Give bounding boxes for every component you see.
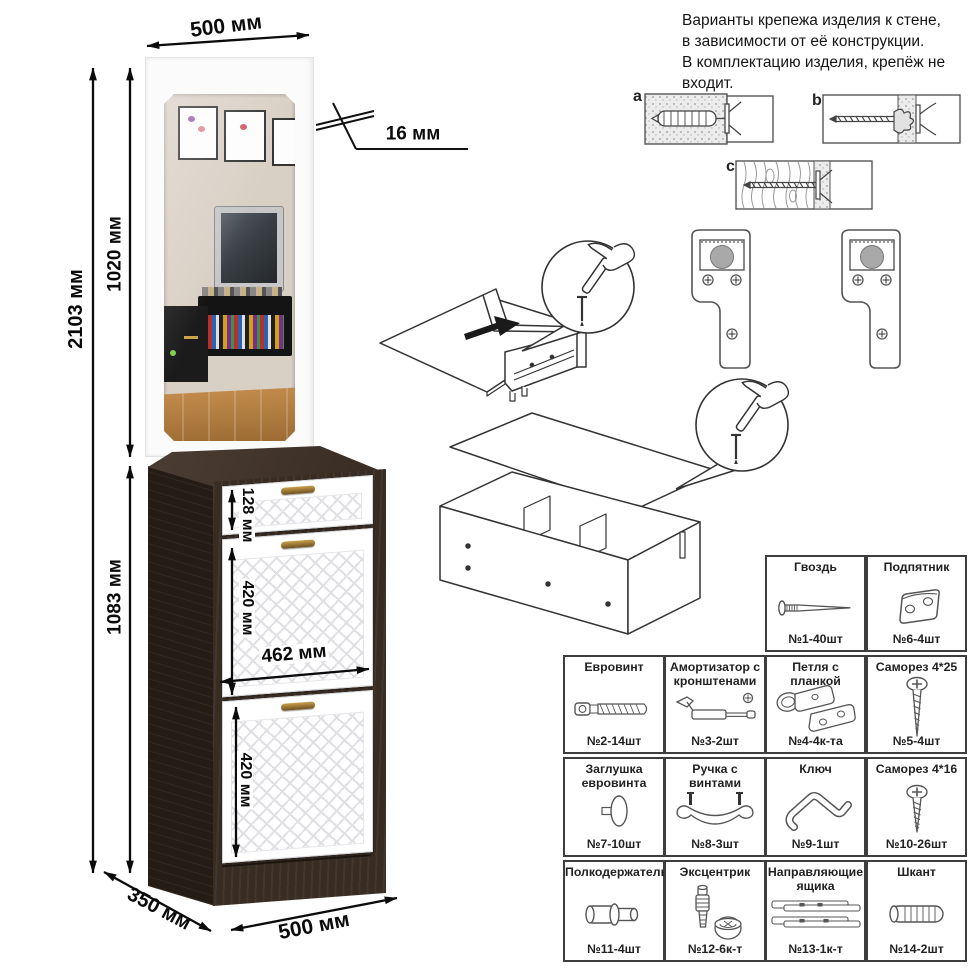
cam-lock-icon [666,892,764,938]
note-line: В комплектацию изделия, крепёж не [682,52,970,73]
part-cell-screw-4x16: Саморез 4*16 №10-26шт [866,757,967,857]
part-name: Гвоздь [767,557,864,575]
screw-4x25-icon [868,687,965,730]
part-name: Саморез 4*25 [868,657,965,675]
part-cell-drawer-slides: Направляющие ящика №13-1к-т [765,860,866,962]
mount-option-a-label: a [633,88,642,106]
drawer-slides-icon [767,892,864,938]
part-name: Шкант [868,862,965,880]
dowel-icon [868,892,965,938]
shelf-pin-icon [565,892,663,938]
part-qty: №11-4шт [565,942,663,956]
part-cell-handle: Ручка с винтами №8-3шт [664,757,766,857]
part-cell-screw-4x25: Саморез 4*25 №5-4шт [866,655,967,754]
part-cell-dowel: Шкант №14-2шт [866,860,967,962]
part-qty: №13-1к-т [767,942,864,956]
part-qty: №2-14шт [565,734,663,748]
part-qty: №10-26шт [868,837,965,851]
drawer-handle [281,485,315,495]
part-name: Подпятник [868,557,965,575]
handle-icon [666,789,764,833]
note-line: Варианты крепежа изделия к стене, [682,10,970,31]
screw-4x16-icon [868,789,965,833]
mount-option-b-figure [820,90,966,148]
part-qty: №12-6к-т [666,942,764,956]
dim-thickness: 16 мм [384,125,443,144]
part-name: Ключ [767,759,864,777]
part-cell-hinge: Петля с планкой №4-4к-та [765,655,866,754]
part-qty: №4-4к-та [767,734,864,748]
part-qty: №9-1шт [767,837,864,851]
lower-door-handle [281,701,315,711]
cabinet-left-side [148,466,215,906]
foot-pad-icon [868,587,965,628]
dim-bottom-width: 500 мм [275,908,354,943]
part-qty: №8-3шт [666,837,764,851]
part-qty: №14-2шт [868,942,965,956]
cap-icon [565,789,663,833]
dim-mirror-height: 1020 мм [106,214,125,294]
hanging-brackets-figure [684,226,908,374]
keyhole-bracket-icon [842,230,900,368]
mirror-panel [145,57,314,457]
keyhole-bracket-icon [692,230,750,368]
part-name: Саморез 4*16 [868,759,965,777]
part-qty: №6-4шт [868,632,965,646]
part-cell-cam-lock: Эксцентрик №12-6к-т [664,860,766,962]
part-qty: №1-40шт [767,632,864,646]
part-name: Полкодержатель [565,862,663,880]
gas-lift-icon [666,687,764,730]
part-qty: №5-4шт [868,734,965,748]
part-cell-cap: Заглушка евровинта №7-10шт [563,757,665,857]
hinge-icon [767,687,864,730]
part-name: Направляющие ящика [767,862,864,894]
confirmat-screw-icon [565,687,663,730]
part-name: Эксцентрик [666,862,764,880]
part-cell-confirmat: Евровинт №2-14шт [563,655,665,754]
part-cell-nail: Гвоздь №1-40шт [765,555,866,652]
dim-cabinet-height: 1083 мм [106,557,125,637]
part-cell-shelf-pin: Полкодержатель №11-4шт [563,860,665,962]
dim-top-width: 500 мм [187,11,265,41]
dim-total-height: 2103 мм [66,267,86,351]
wall-mount-note: Варианты крепежа изделия к стене, в зави… [682,10,970,94]
note-line: в зависимости от её конструкции. [682,31,970,52]
part-qty: №7-10шт [565,837,663,851]
part-name: Амортизатор с кронштенами [666,657,764,689]
furniture-assembly-sheet: Варианты крепежа изделия к стене, в зави… [0,0,970,970]
mount-option-c-figure [734,156,876,214]
part-name: Евровинт [565,657,663,675]
dim-drawer-height: 128 мм [239,486,255,545]
dim-upper-door-height: 420 мм [239,579,255,638]
part-cell-foot-pad: Подпятник №6-4шт [866,555,967,652]
part-cell-key: Ключ №9-1шт [765,757,866,857]
part-cell-gas-lift: Амортизатор с кронштенами №3-2шт [664,655,766,754]
key-icon [767,789,864,833]
mount-option-a-figure [644,88,778,148]
carcass-assembly-figure [428,356,803,656]
part-name: Заглушка евровинта [565,759,663,791]
part-qty: №3-2шт [666,734,764,748]
mirror [164,94,295,441]
upper-door-handle [281,539,315,549]
dim-lower-door-height: 420 мм [237,751,253,810]
nail-icon [767,587,864,628]
part-name: Ручка с винтами [666,759,764,791]
